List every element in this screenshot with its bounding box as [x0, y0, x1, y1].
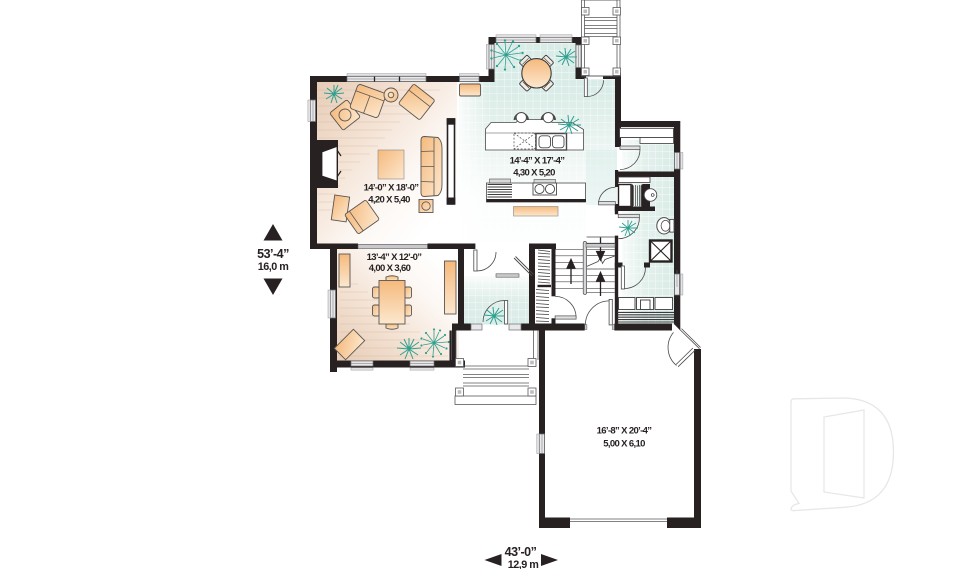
svg-text:14’-4” X 17’-4”: 14’-4” X 17’-4”	[510, 156, 566, 167]
svg-text:16’-8” X 20’-4”: 16’-8” X 20’-4”	[597, 426, 653, 437]
svg-text:14’-0” X 18’-0”: 14’-0” X 18’-0”	[364, 183, 420, 194]
svg-text:43’-0”: 43’-0”	[505, 545, 537, 559]
svg-text:5,00 X 6,10: 5,00 X 6,10	[603, 439, 645, 450]
svg-text:13’-4” X 12’-0”: 13’-4” X 12’-0”	[367, 252, 423, 263]
svg-text:12,9 m: 12,9 m	[508, 559, 539, 569]
svg-text:4,30 X 5,20: 4,30 X 5,20	[513, 168, 555, 179]
svg-text:4,20 X 5,40: 4,20 X 5,40	[368, 195, 410, 206]
svg-text:16,0 m: 16,0 m	[258, 261, 289, 273]
svg-text:4,00 X 3,60: 4,00 X 3,60	[369, 263, 411, 274]
svg-text:53’-4”: 53’-4”	[257, 247, 289, 261]
